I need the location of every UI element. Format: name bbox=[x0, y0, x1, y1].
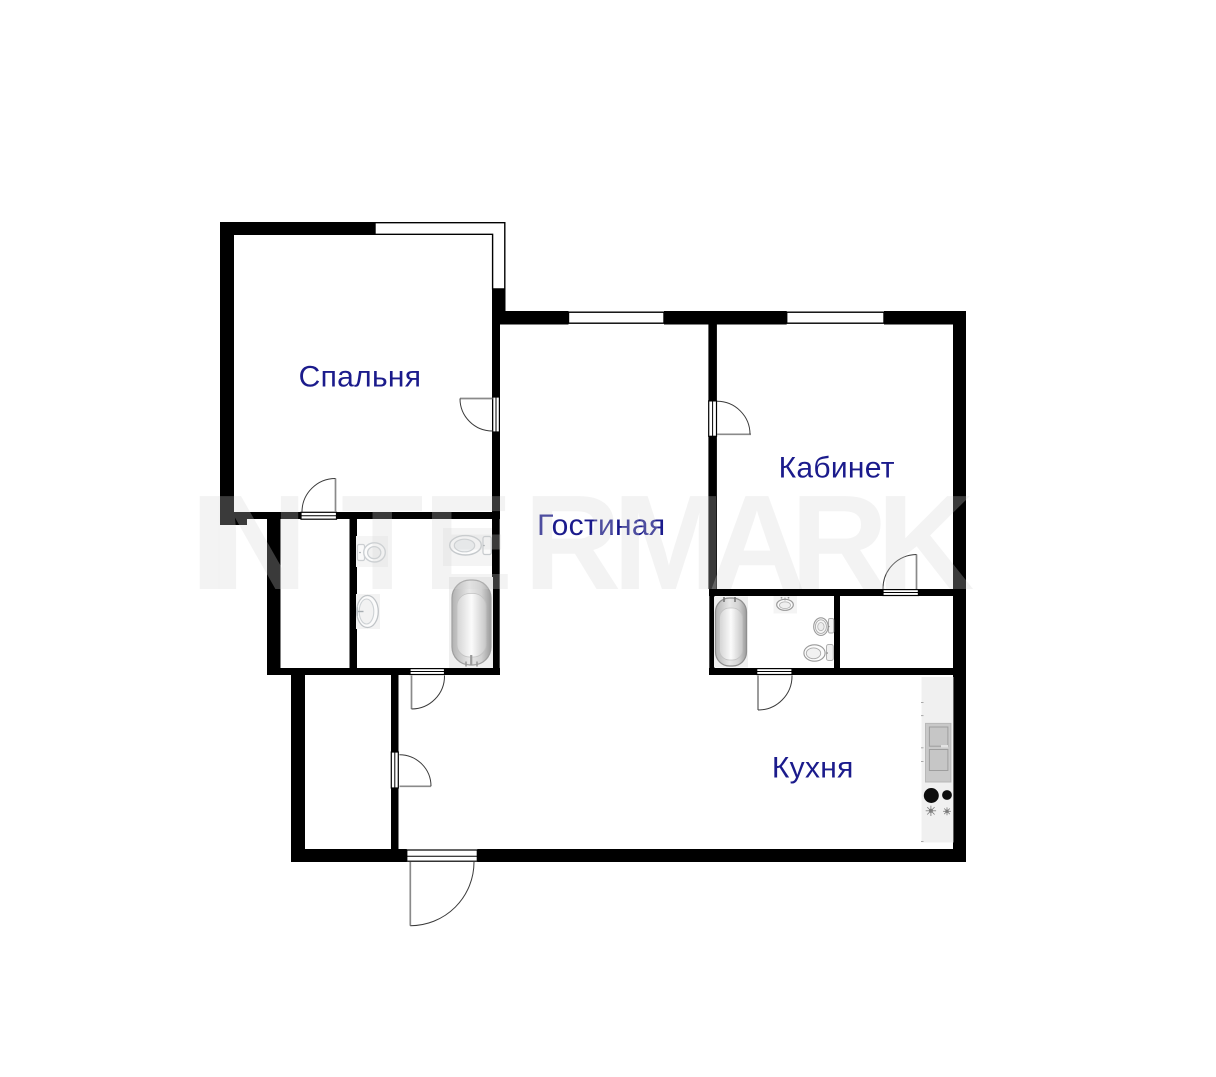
svg-text:Кухня: Кухня bbox=[772, 751, 854, 784]
svg-text:Спальня: Спальня bbox=[299, 361, 422, 394]
